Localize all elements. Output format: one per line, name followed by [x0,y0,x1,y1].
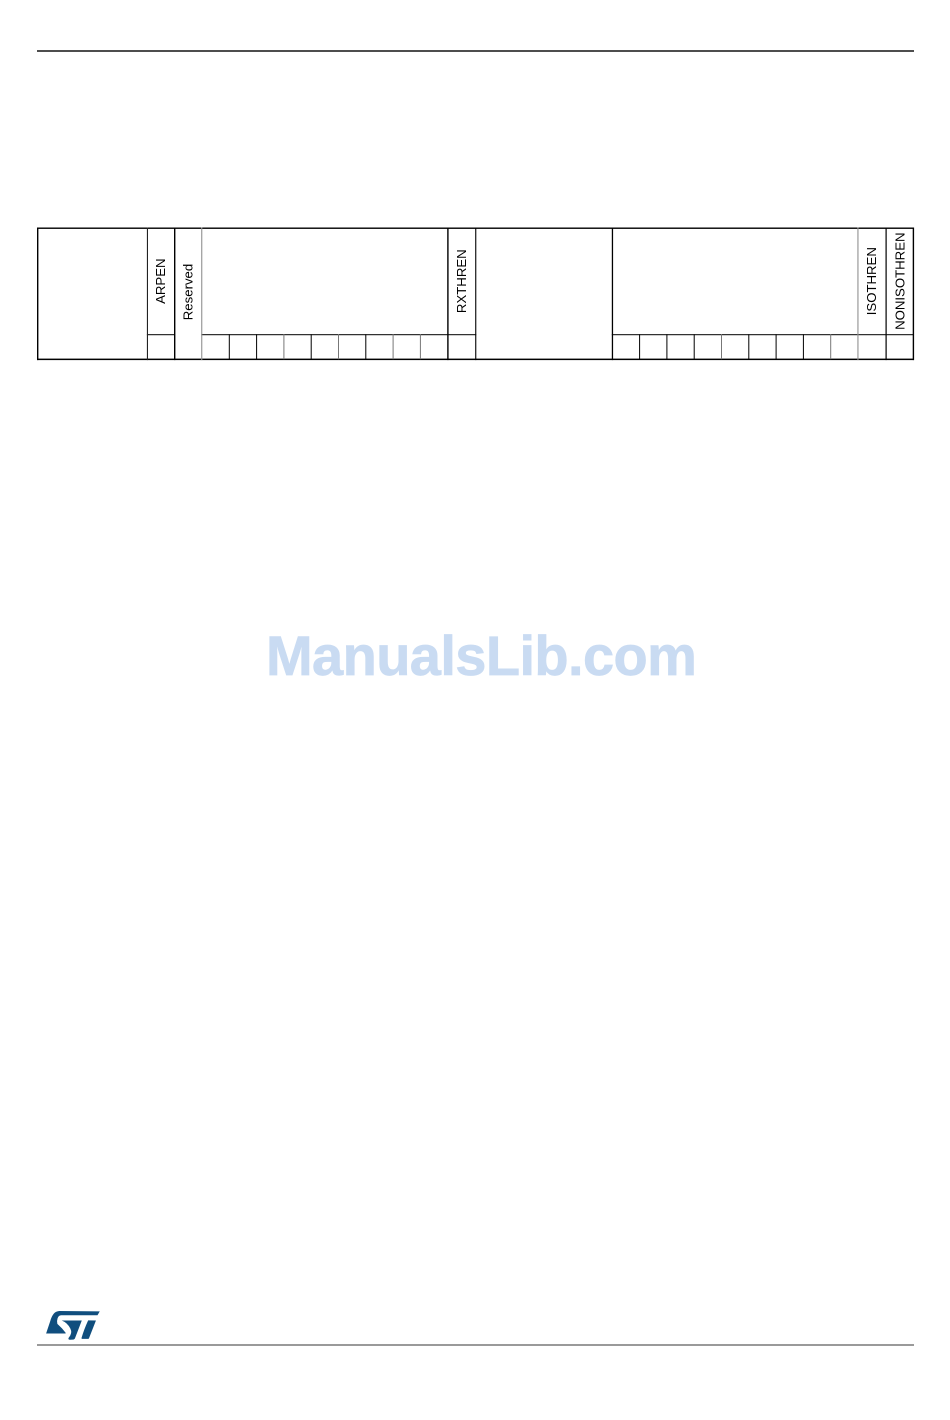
svg-text:RXTHREN: RXTHREN [454,249,469,313]
svg-text:ISOTHREN: ISOTHREN [864,247,879,315]
svg-text:Reserved: Reserved [180,264,195,320]
svg-text:NONISOTHREN: NONISOTHREN [892,232,907,329]
svg-text:ARPEN: ARPEN [153,258,168,303]
